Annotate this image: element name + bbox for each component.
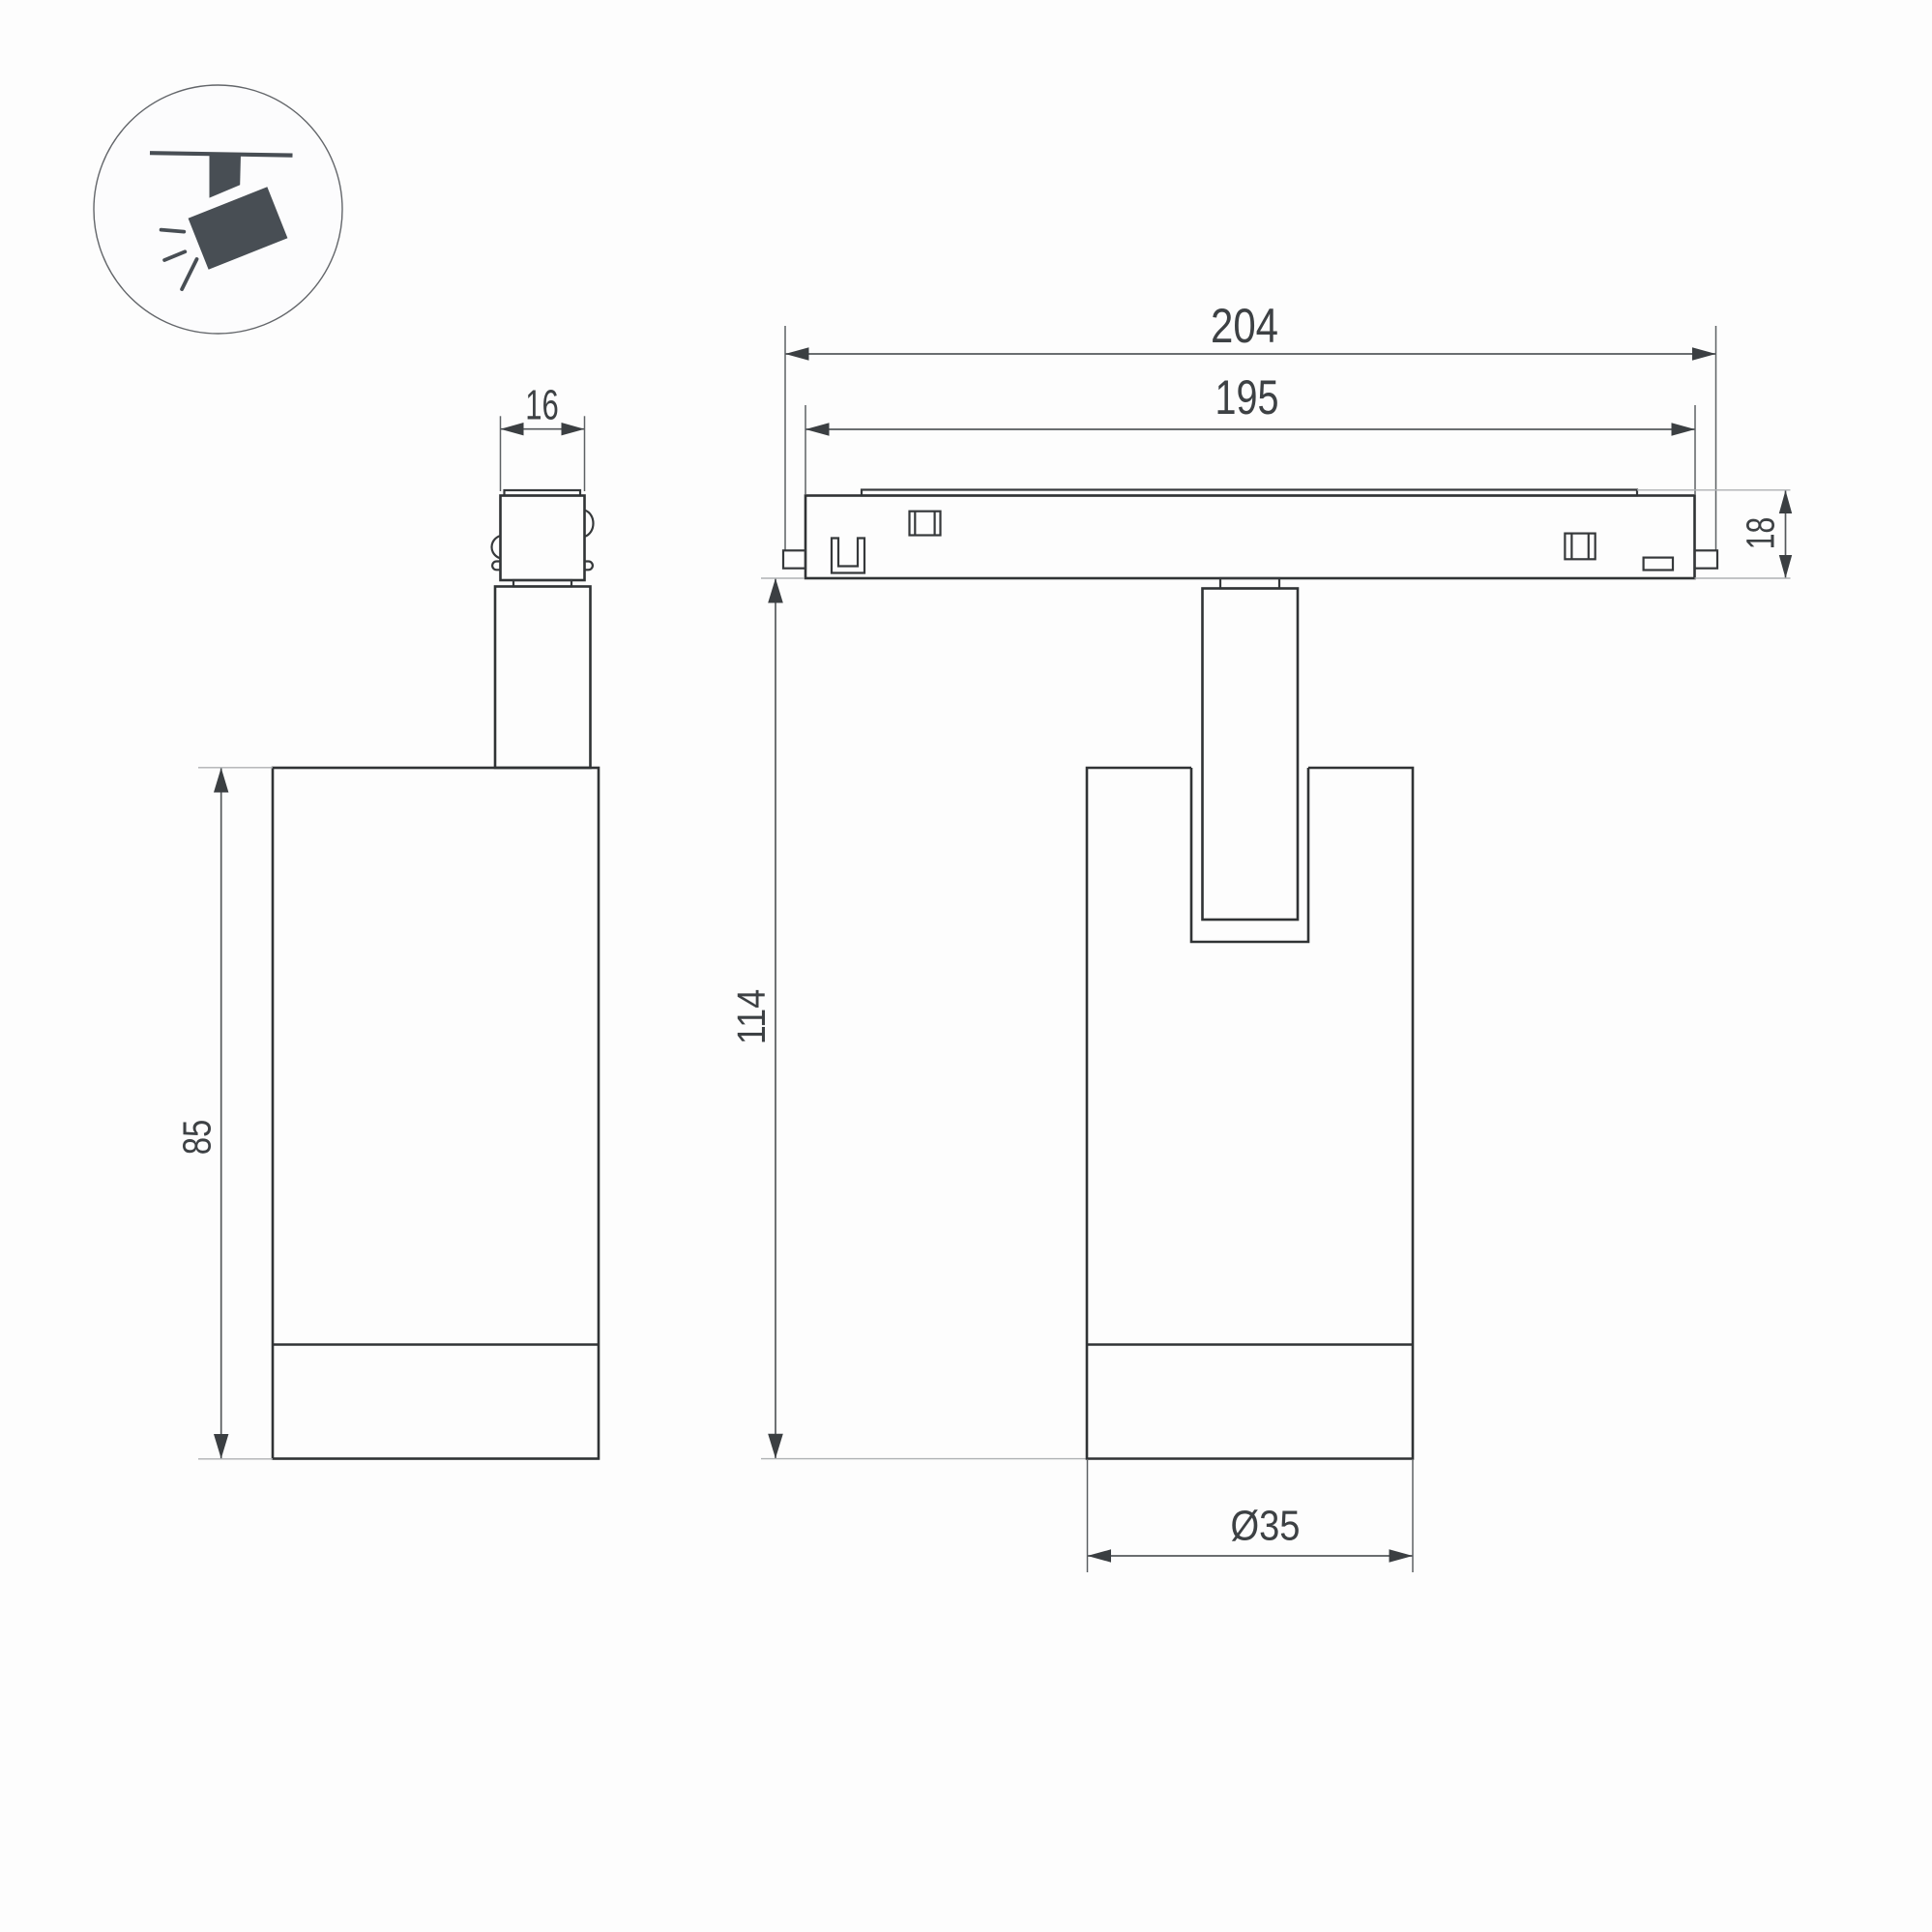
svg-text:114: 114 xyxy=(729,989,774,1045)
svg-text:16: 16 xyxy=(525,383,559,429)
svg-text:18: 18 xyxy=(1739,517,1783,550)
svg-text:195: 195 xyxy=(1215,370,1279,424)
svg-text:Ø35: Ø35 xyxy=(1231,1503,1301,1550)
svg-text:85: 85 xyxy=(174,1120,219,1156)
svg-text:204: 204 xyxy=(1211,299,1278,353)
